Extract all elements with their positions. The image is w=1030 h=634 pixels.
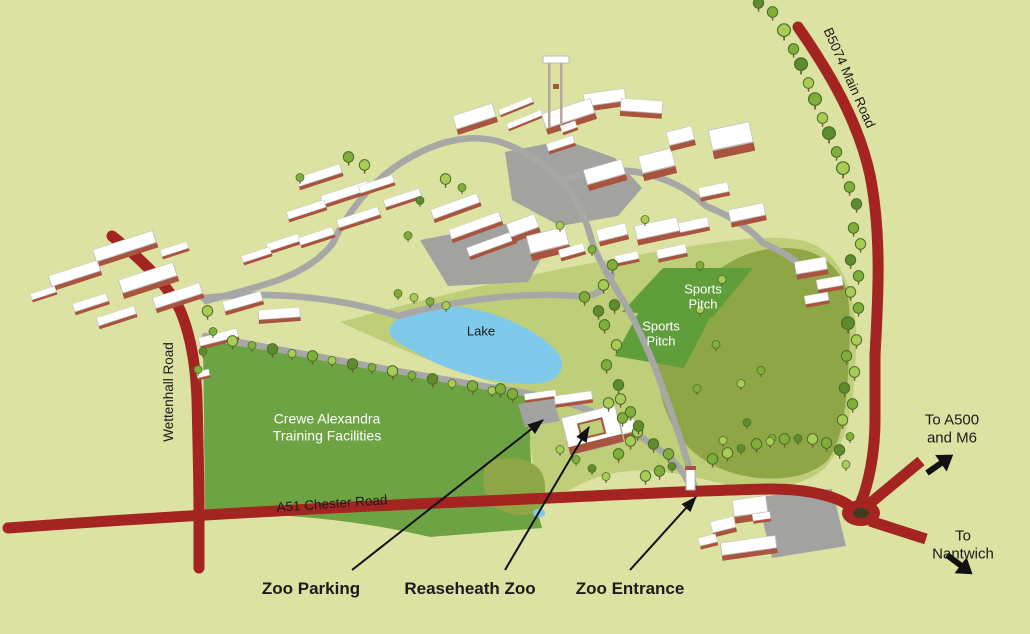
campus-zoo-map: B5074 Main Road Wettenhall Road A51 Ches… [0, 0, 1030, 634]
map-graphic [0, 0, 1030, 634]
nantwich-arrow [941, 547, 979, 582]
roundabout [842, 500, 880, 526]
spur-nantwich [870, 521, 926, 539]
a500-arrow [921, 446, 959, 481]
zoo-entrance-gate [685, 466, 696, 490]
zoo-entrance-pointer [630, 497, 696, 570]
